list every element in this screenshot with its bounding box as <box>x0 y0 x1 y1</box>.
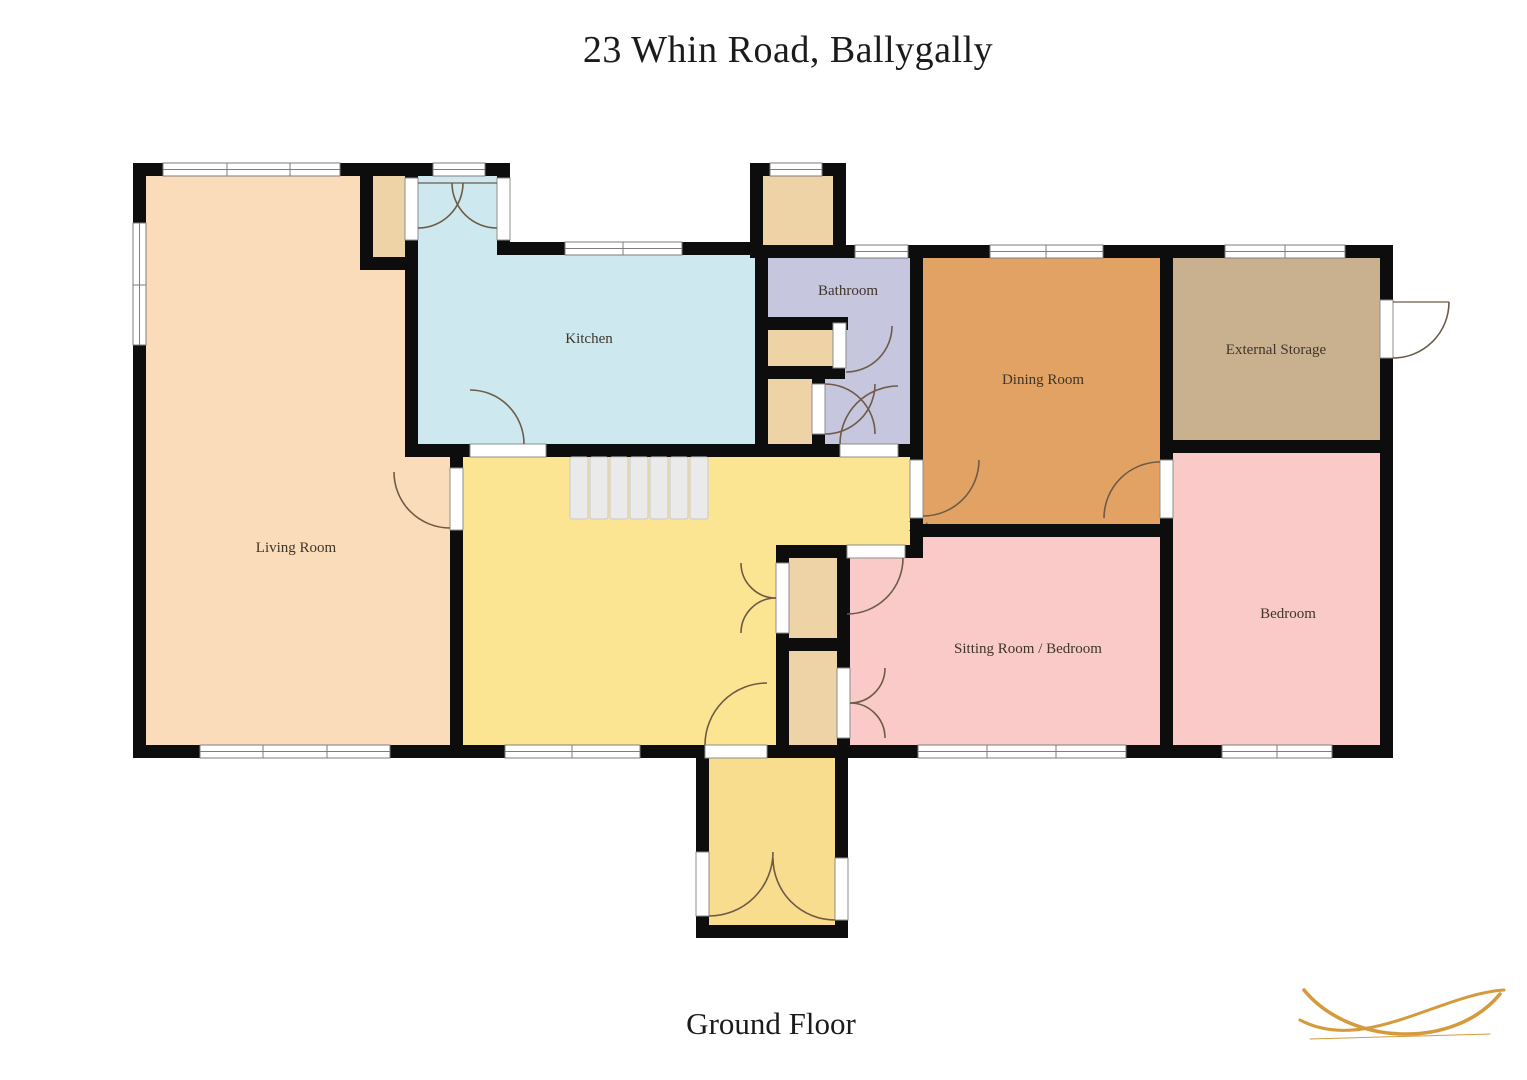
window <box>770 163 822 176</box>
window <box>163 163 340 176</box>
wall <box>755 245 768 457</box>
bedroom-label: Bedroom <box>1260 606 1316 622</box>
door-jamb <box>847 545 905 558</box>
stair-tread <box>590 457 608 519</box>
stair-tread <box>570 457 588 519</box>
wall <box>833 163 846 258</box>
door-jamb <box>705 745 767 758</box>
stair-tread <box>670 457 688 519</box>
room-kitchen <box>410 248 760 448</box>
window <box>990 245 1103 258</box>
external-storage-label: External Storage <box>1226 342 1327 358</box>
door-jamb <box>812 384 825 434</box>
closet-top <box>371 174 407 260</box>
wall <box>910 524 1173 537</box>
window <box>1222 745 1332 758</box>
stairs <box>570 457 708 519</box>
sitting-room-label: Sitting Room / Bedroom <box>954 641 1102 657</box>
wall <box>360 163 373 270</box>
window <box>1225 245 1345 258</box>
window <box>565 242 682 255</box>
door-jamb <box>696 852 709 916</box>
bathroom-label: Bathroom <box>818 283 878 299</box>
kitchen-label: Kitchen <box>565 331 613 347</box>
logo-swoosh-icon <box>1292 978 1514 1074</box>
window <box>433 163 485 176</box>
wall <box>1160 245 1173 453</box>
porch-top <box>758 170 838 248</box>
door-jamb <box>1160 460 1173 518</box>
door-jamb <box>835 858 848 920</box>
closet-bathroom-2 <box>768 379 812 444</box>
door-jamb <box>840 444 898 457</box>
stair-tread <box>650 457 668 519</box>
stair-tread <box>610 457 628 519</box>
floor-plan-page: 23 Whin Road, Ballygally Entrance <box>0 0 1527 1080</box>
window <box>918 745 1126 758</box>
door-jamb <box>497 178 510 240</box>
closet-hall-1 <box>789 558 837 638</box>
room-bedroom <box>1168 448 1386 752</box>
door-arc <box>1393 302 1449 358</box>
wall <box>755 366 845 379</box>
dining-room-label: Dining Room <box>1002 372 1084 388</box>
closet-bathroom-1 <box>768 330 833 366</box>
door-jamb <box>450 468 463 530</box>
wall <box>776 638 850 651</box>
window <box>133 223 146 345</box>
door-jamb <box>405 178 418 240</box>
window <box>855 245 908 258</box>
wall <box>750 163 763 258</box>
floor-name: Ground Floor <box>686 1006 856 1042</box>
room-dining <box>918 252 1165 530</box>
door-jamb <box>470 444 546 457</box>
porch-bottom <box>705 750 839 928</box>
floor-plan: Entrance <box>0 0 1527 1080</box>
door-jamb <box>833 323 846 368</box>
window <box>505 745 640 758</box>
living-room-label: Living Room <box>256 540 337 556</box>
stair-tread <box>690 457 708 519</box>
door-jamb <box>837 668 850 738</box>
window <box>200 745 390 758</box>
door-jamb <box>910 460 923 518</box>
door-jamb <box>1380 300 1393 358</box>
wall <box>696 925 848 938</box>
wall <box>1160 440 1393 453</box>
stair-tread <box>630 457 648 519</box>
door-jamb <box>776 563 789 633</box>
closet-hall-2 <box>789 651 837 745</box>
